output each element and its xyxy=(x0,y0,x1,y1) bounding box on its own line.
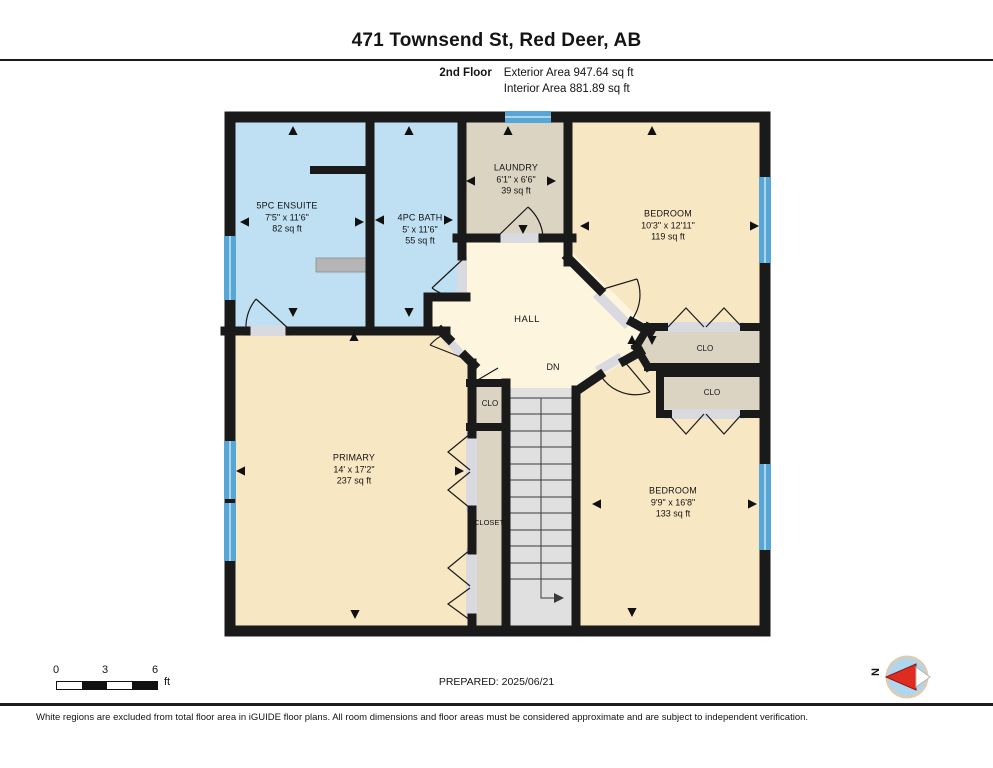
scale-tick-3: 3 xyxy=(102,664,108,676)
scale-tick-6: 6 xyxy=(152,664,158,676)
room-label-clo-small: CLO xyxy=(482,399,498,409)
room-label-laundry: LAUNDRY 6'1" x 6'6" 39 sq ft xyxy=(494,162,538,197)
compass-graphic xyxy=(870,650,940,706)
room-label-clo-lower: CLO xyxy=(704,388,720,398)
room-label-hall: HALL xyxy=(514,314,540,326)
room-label-primary: PRIMARY 14' x 17'2" 237 sq ft xyxy=(333,452,375,487)
room-label-closet: CLOSET xyxy=(474,518,504,528)
disclaimer-text: White regions are excluded from total fl… xyxy=(36,712,966,723)
compass-north-label: N xyxy=(870,668,882,676)
floorplan-page: 471 Townsend St, Red Deer, AB 2nd Floor … xyxy=(0,0,993,768)
room-label-bath: 4PC BATH 5' x 11'6" 55 sq ft xyxy=(398,212,443,247)
closet-area xyxy=(474,427,506,631)
room-label-bedroom-lower: BEDROOM 9'9" x 16'8" 133 sq ft xyxy=(649,485,697,520)
vanity-counter xyxy=(316,258,370,272)
room-label-ensuite: 5PC ENSUITE 7'5" x 11'6" 82 sq ft xyxy=(256,200,317,235)
room-label-clo-upper: CLO xyxy=(697,344,713,354)
scale-tick-0: 0 xyxy=(53,664,59,676)
compass-icon: N xyxy=(870,650,940,706)
room-label-bedroom-upper: BEDROOM 10'3" x 12'11" 119 sq ft xyxy=(641,208,695,243)
prepared-date: PREPARED: 2025/06/21 xyxy=(0,676,993,688)
floorplan-drawing xyxy=(0,0,993,768)
footer-divider xyxy=(0,703,993,706)
stairs-dn-label: DN xyxy=(547,362,560,374)
